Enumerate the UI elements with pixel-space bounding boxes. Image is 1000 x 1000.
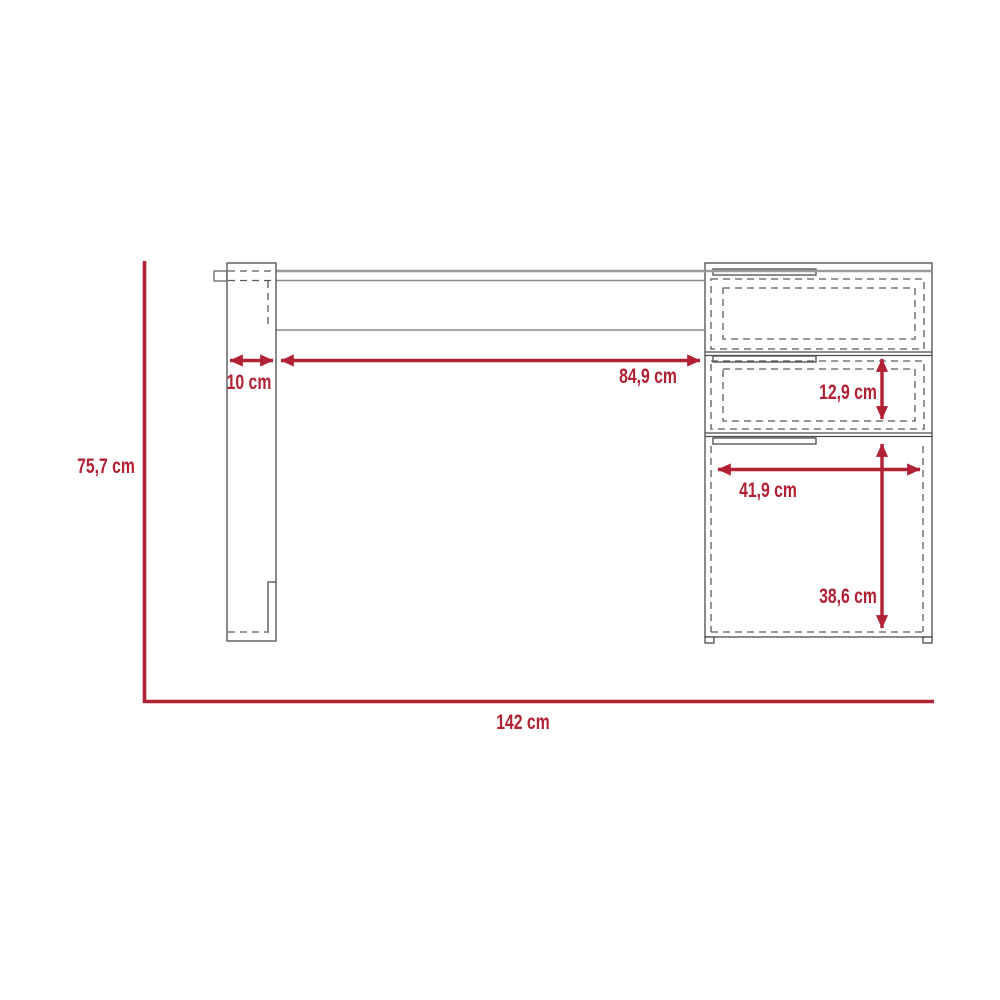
drawer-width-label: 41,9 cm — [727, 480, 810, 501]
overall-height-label: 75,7 cm — [65, 456, 148, 477]
left-leg-panel — [227, 263, 276, 641]
dimension-diagram: 75,7 cm 142 cm 10 cm 84,9 cm 12,9 cm 41,… — [0, 0, 1000, 1000]
overall-width-label: 142 cm — [482, 712, 565, 733]
surface-left-tab — [214, 271, 227, 281]
desk-line-drawing — [0, 0, 1000, 1000]
drawer-height-label: 12,9 cm — [807, 382, 890, 403]
leg-width-label: 10 cm — [208, 372, 291, 393]
knee-space-width-label: 84,9 cm — [607, 366, 690, 387]
cabinet-height-label: 38,6 cm — [807, 586, 890, 607]
drawer-unit-feet — [705, 637, 932, 643]
